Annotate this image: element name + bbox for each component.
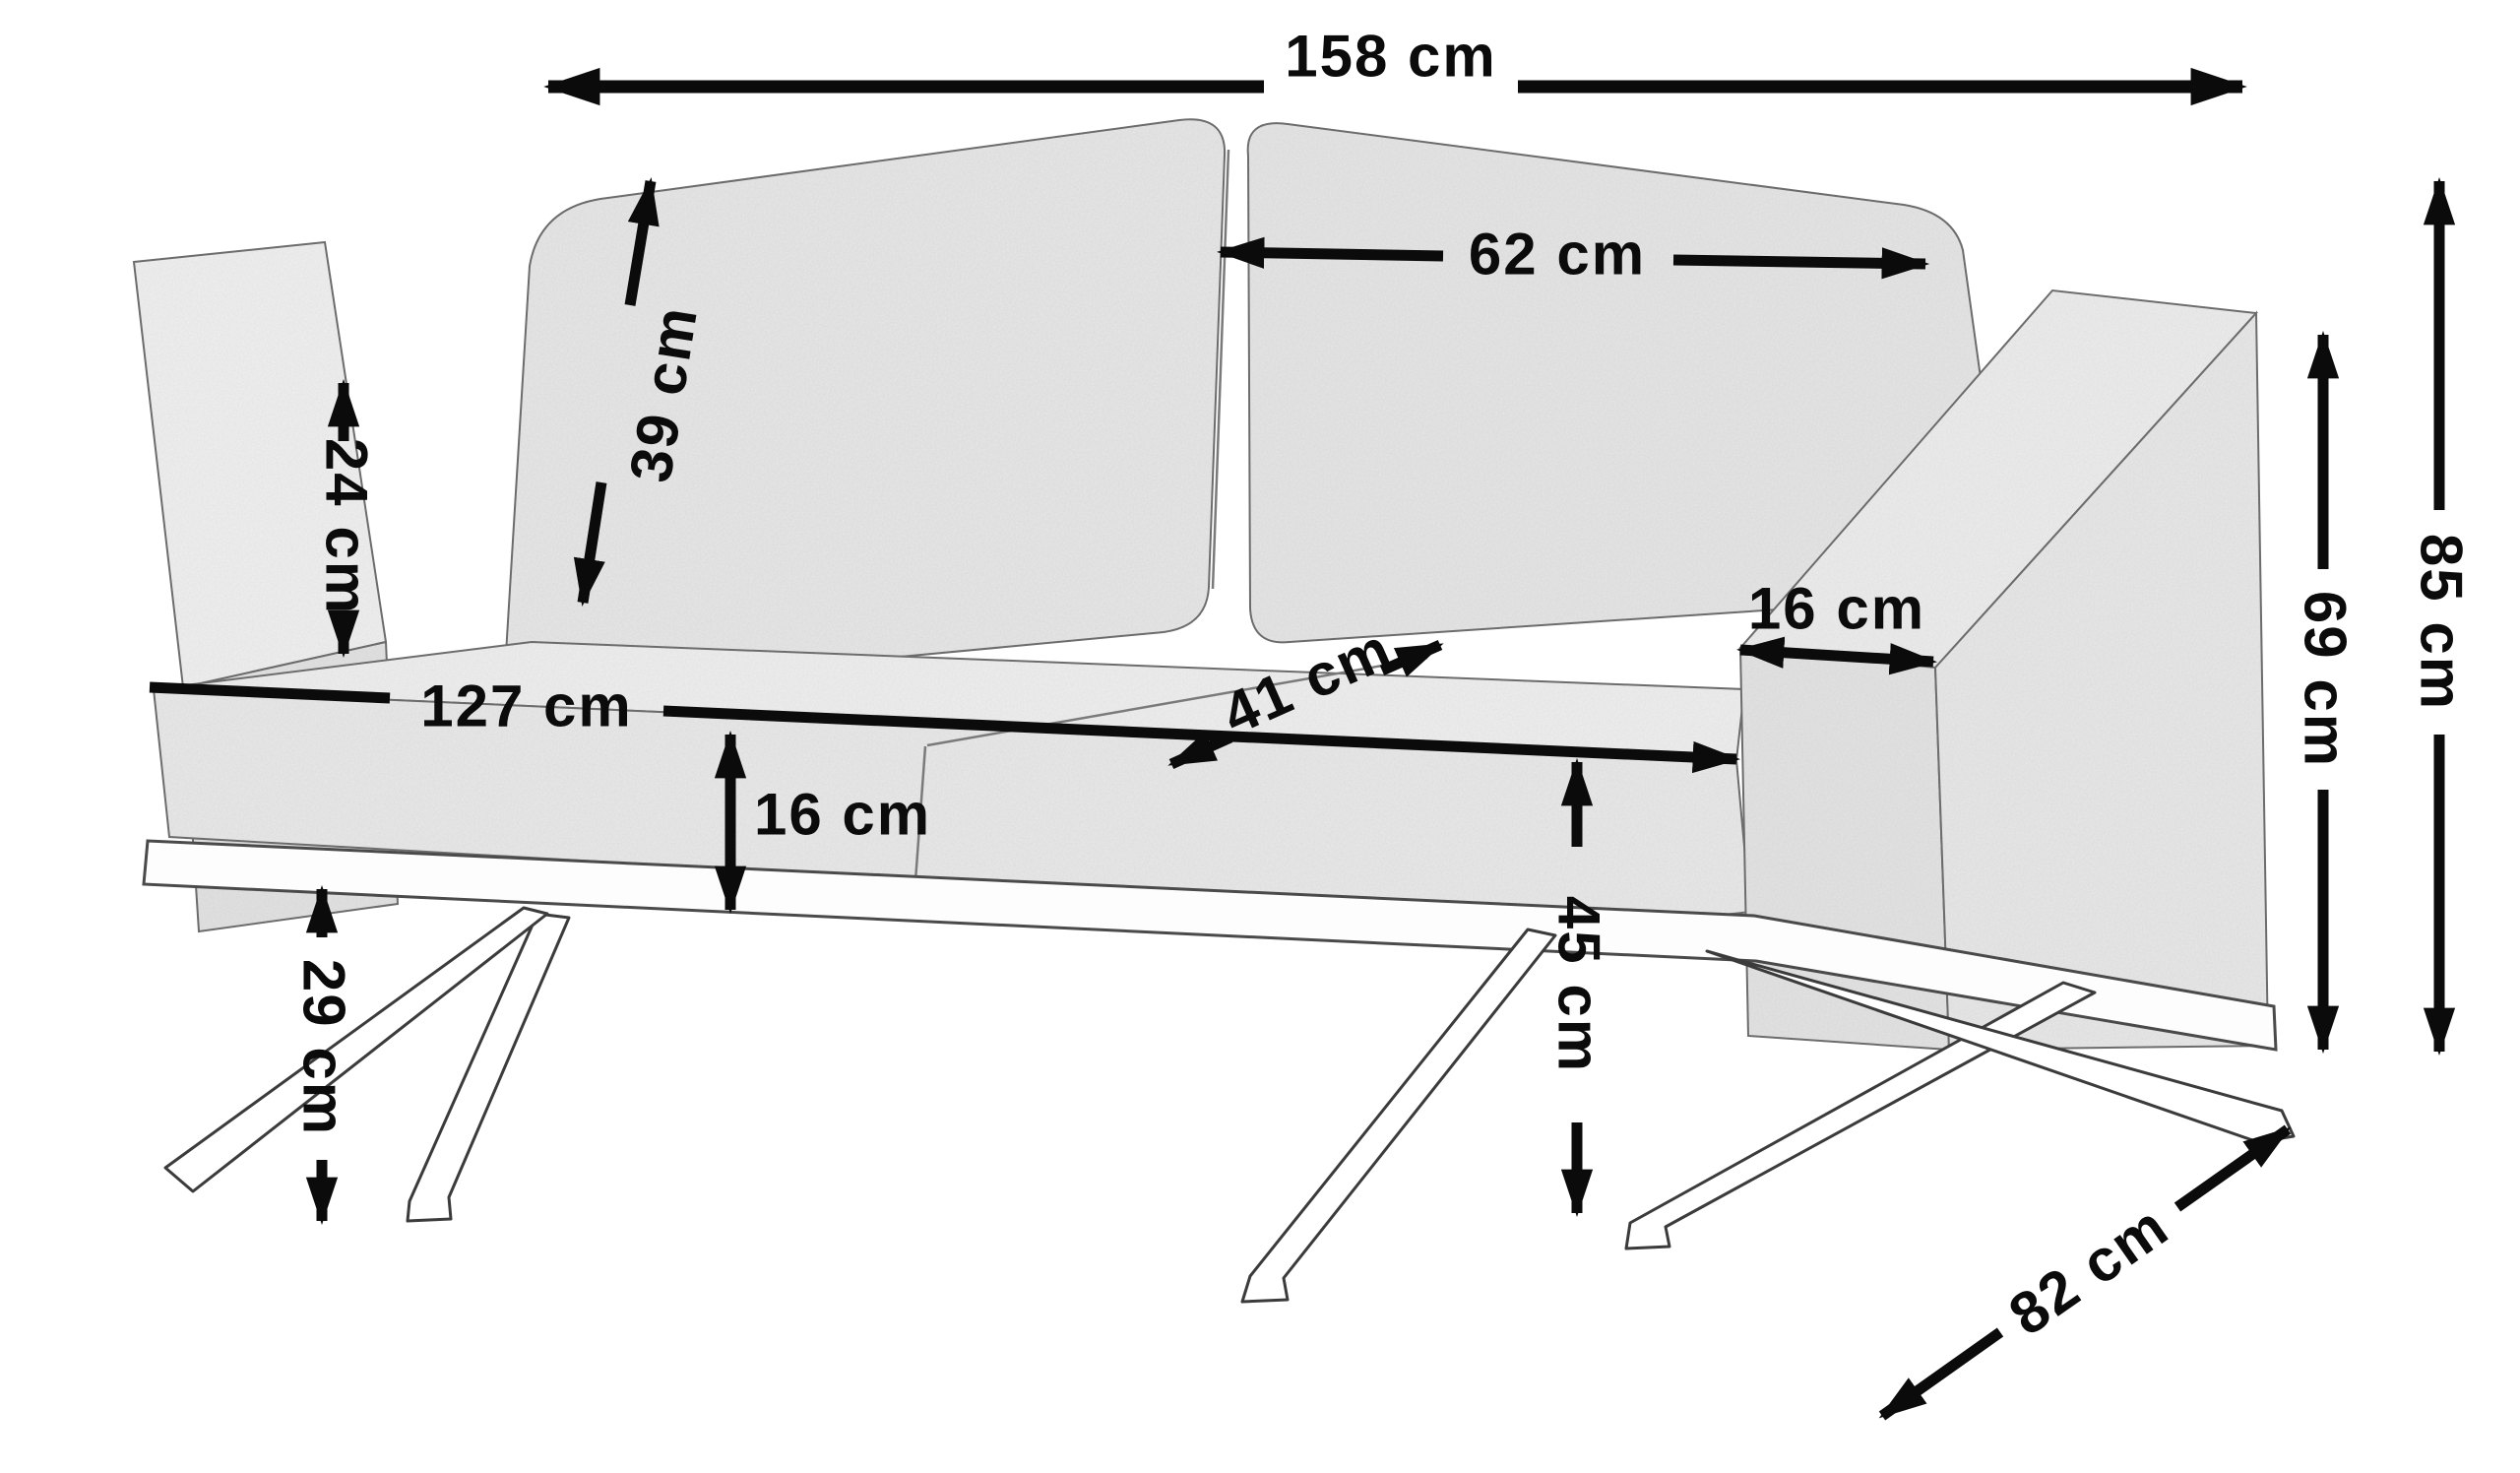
diagram-canvas: 158 cm 62 cm 39 cm 24 cm 127 cm 41 cm 16… — [0, 0, 2520, 1473]
dimension-line — [1882, 1332, 2000, 1416]
dimension-line — [1673, 260, 1925, 264]
dimension-armrest-height: 69 cm — [2293, 335, 2359, 1050]
dimension-overall-depth: 82 cm — [1882, 1129, 2288, 1416]
dimension-overall-width: 158 cm — [548, 24, 2242, 90]
leg-back-center — [1242, 929, 1555, 1302]
dimension-label-overall-height: 85 cm — [2409, 534, 2475, 711]
dimension-line — [2177, 1129, 2288, 1207]
dimension-under-clearance: 29 cm — [291, 889, 357, 1221]
back-cushion-left — [506, 119, 1225, 690]
dimension-label-seat-width: 127 cm — [420, 673, 633, 739]
dimension-label-overall-depth: 82 cm — [1997, 1192, 2180, 1348]
dimension-label-overall-width: 158 cm — [1285, 24, 1497, 90]
dimension-label-armrest-width: 16 cm — [1748, 576, 1925, 642]
dimension-label-under-clearance: 29 cm — [291, 959, 357, 1136]
dimension-label-back-cushion-width: 62 cm — [1469, 222, 1646, 288]
sofa-dimension-diagram: 158 cm 62 cm 39 cm 24 cm 127 cm 41 cm 16… — [0, 0, 2520, 1473]
dimension-label-seat-cushion-thickness: 16 cm — [754, 782, 931, 848]
dimension-label-seat-height: 45 cm — [1546, 896, 1612, 1073]
dimension-line — [1221, 252, 1443, 256]
dimension-label-armrest-top-depth: 24 cm — [314, 438, 380, 615]
dimension-label-armrest-height: 69 cm — [2293, 591, 2359, 768]
dimension-overall-height: 85 cm — [2409, 181, 2475, 1052]
